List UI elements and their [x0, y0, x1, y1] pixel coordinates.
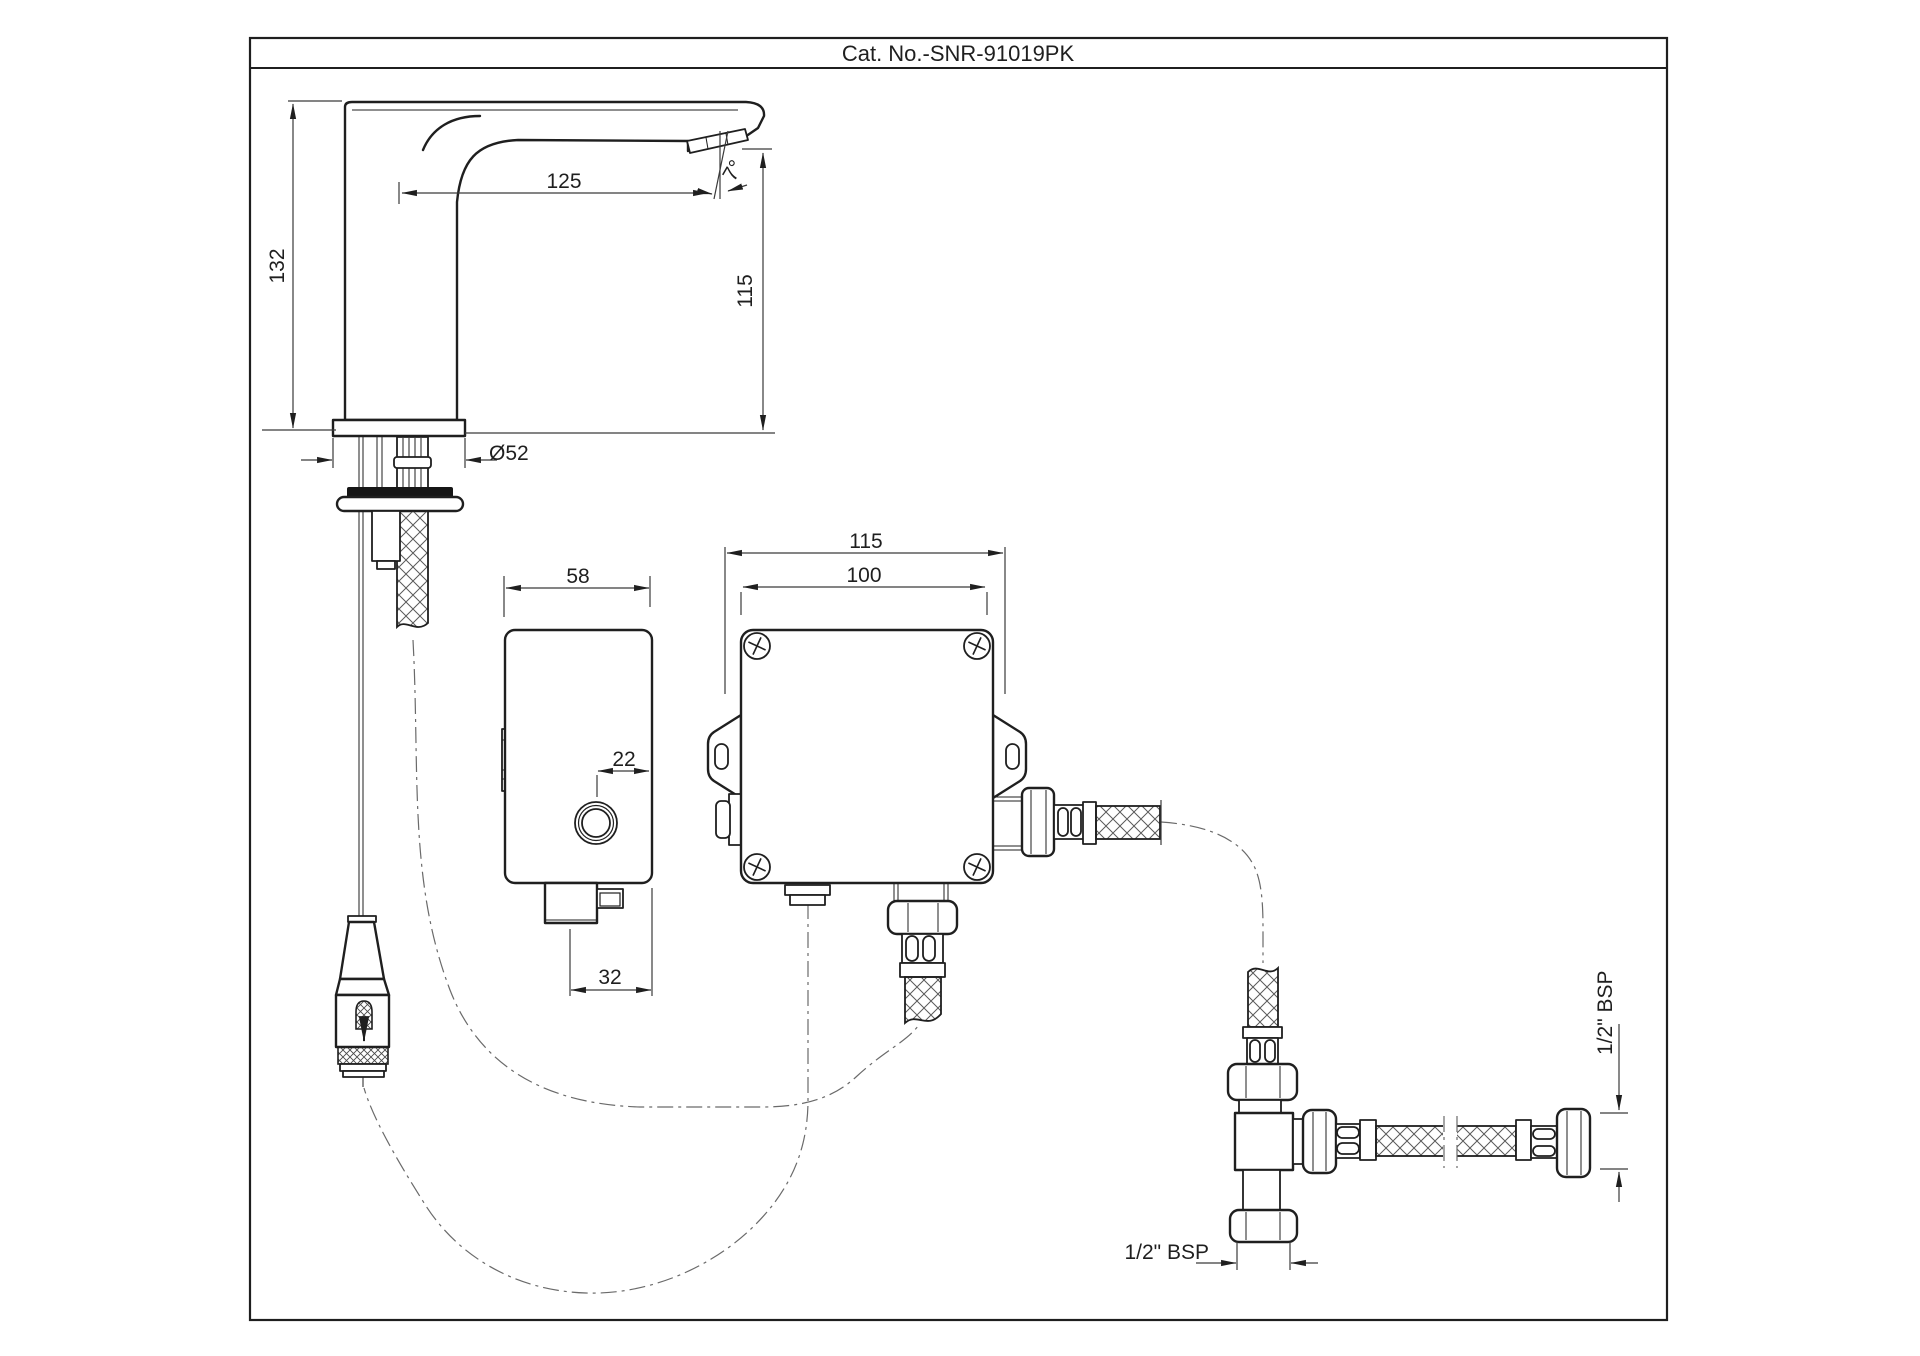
dim-32: 32: [598, 966, 621, 989]
dim-bsp-bottom: 1/2" BSP: [1124, 1241, 1209, 1264]
thread-capsule: [1533, 1129, 1555, 1139]
probe-shoulder: [336, 979, 389, 995]
bottom-connector: [545, 883, 597, 923]
thread-capsule: [1337, 1127, 1359, 1138]
hose-break-gap: [1443, 1119, 1457, 1163]
crimp-collar: [1516, 1120, 1531, 1160]
screw-icon: [964, 633, 990, 659]
screw-icon: [964, 854, 990, 880]
control-button: [582, 809, 610, 837]
braided-hose: [905, 977, 941, 1023]
braided-hose: [1096, 806, 1160, 839]
thread-capsule: [1337, 1143, 1359, 1154]
thread-capsule: [906, 936, 918, 961]
horizontal-braided-hose: [1376, 1126, 1444, 1156]
inlet-braided-hose: [397, 511, 428, 627]
probe-base-ring: [343, 1071, 384, 1077]
tee-pipe-bottom: [1243, 1170, 1280, 1210]
thread-capsule: [1250, 1040, 1260, 1062]
dim-diameter-52: Ø52: [489, 442, 529, 465]
escutcheon-flange: [337, 497, 463, 511]
cable-port-step: [790, 895, 825, 905]
thread-capsule: [923, 936, 935, 961]
catalog-number-label: Cat. No.-SNR-91019PK: [842, 41, 1075, 66]
knurled-ring: [338, 1047, 388, 1064]
dim-115-box: 115: [849, 530, 882, 553]
hex-nut: [888, 901, 957, 934]
thread-capsule: [1071, 808, 1081, 836]
tee-neck-top: [1239, 1100, 1281, 1113]
cable-port: [785, 885, 830, 895]
screw-icon: [744, 854, 770, 880]
hex-nut-bottom: [1230, 1210, 1297, 1242]
valve-box-housing: [741, 630, 993, 883]
horizontal-braided-hose: [1456, 1126, 1516, 1156]
tee-body: [1235, 1113, 1293, 1170]
thread-capsule: [1265, 1040, 1275, 1062]
mounting-nut-block: [372, 511, 400, 561]
screw-icon: [744, 633, 770, 659]
hex-nut: [1022, 788, 1054, 856]
control-unit: [502, 630, 652, 923]
mounting-nut-tip: [377, 561, 395, 569]
connector-latch: [597, 889, 623, 908]
hex-nut-end: [1557, 1109, 1590, 1177]
vertical-braided-hose: [1248, 968, 1278, 1027]
dim-132: 132: [266, 248, 289, 283]
dim-bsp-right: 1/2" BSP: [1594, 970, 1617, 1055]
dim-100: 100: [846, 564, 881, 587]
tee-neck-right: [1293, 1119, 1303, 1164]
left-port-cap: [716, 801, 730, 838]
dim-125: 125: [546, 170, 581, 193]
crimp-collar: [1083, 802, 1096, 844]
crimp-collar: [1360, 1120, 1376, 1160]
hex-nut-right: [1303, 1110, 1336, 1173]
thread-capsule: [1533, 1146, 1555, 1156]
mounting-slot-left: [715, 744, 728, 769]
dim-115-spout: 115: [734, 274, 757, 307]
dim-58: 58: [566, 565, 589, 588]
mounting-slot-right: [1006, 744, 1019, 769]
installation-drawing: Cat. No.-SNR-91019PK: [0, 0, 1920, 1356]
thread-capsule: [1058, 808, 1068, 836]
shank-nut-band: [394, 457, 431, 468]
dim-22: 22: [612, 748, 635, 771]
crimp-collar: [900, 963, 945, 977]
probe-base-ring: [340, 1064, 386, 1071]
sensor-window-icon: [356, 1001, 372, 1029]
crimp-collar: [1243, 1027, 1282, 1038]
faucet-base-plate: [333, 420, 465, 436]
hex-nut-top: [1228, 1064, 1297, 1100]
